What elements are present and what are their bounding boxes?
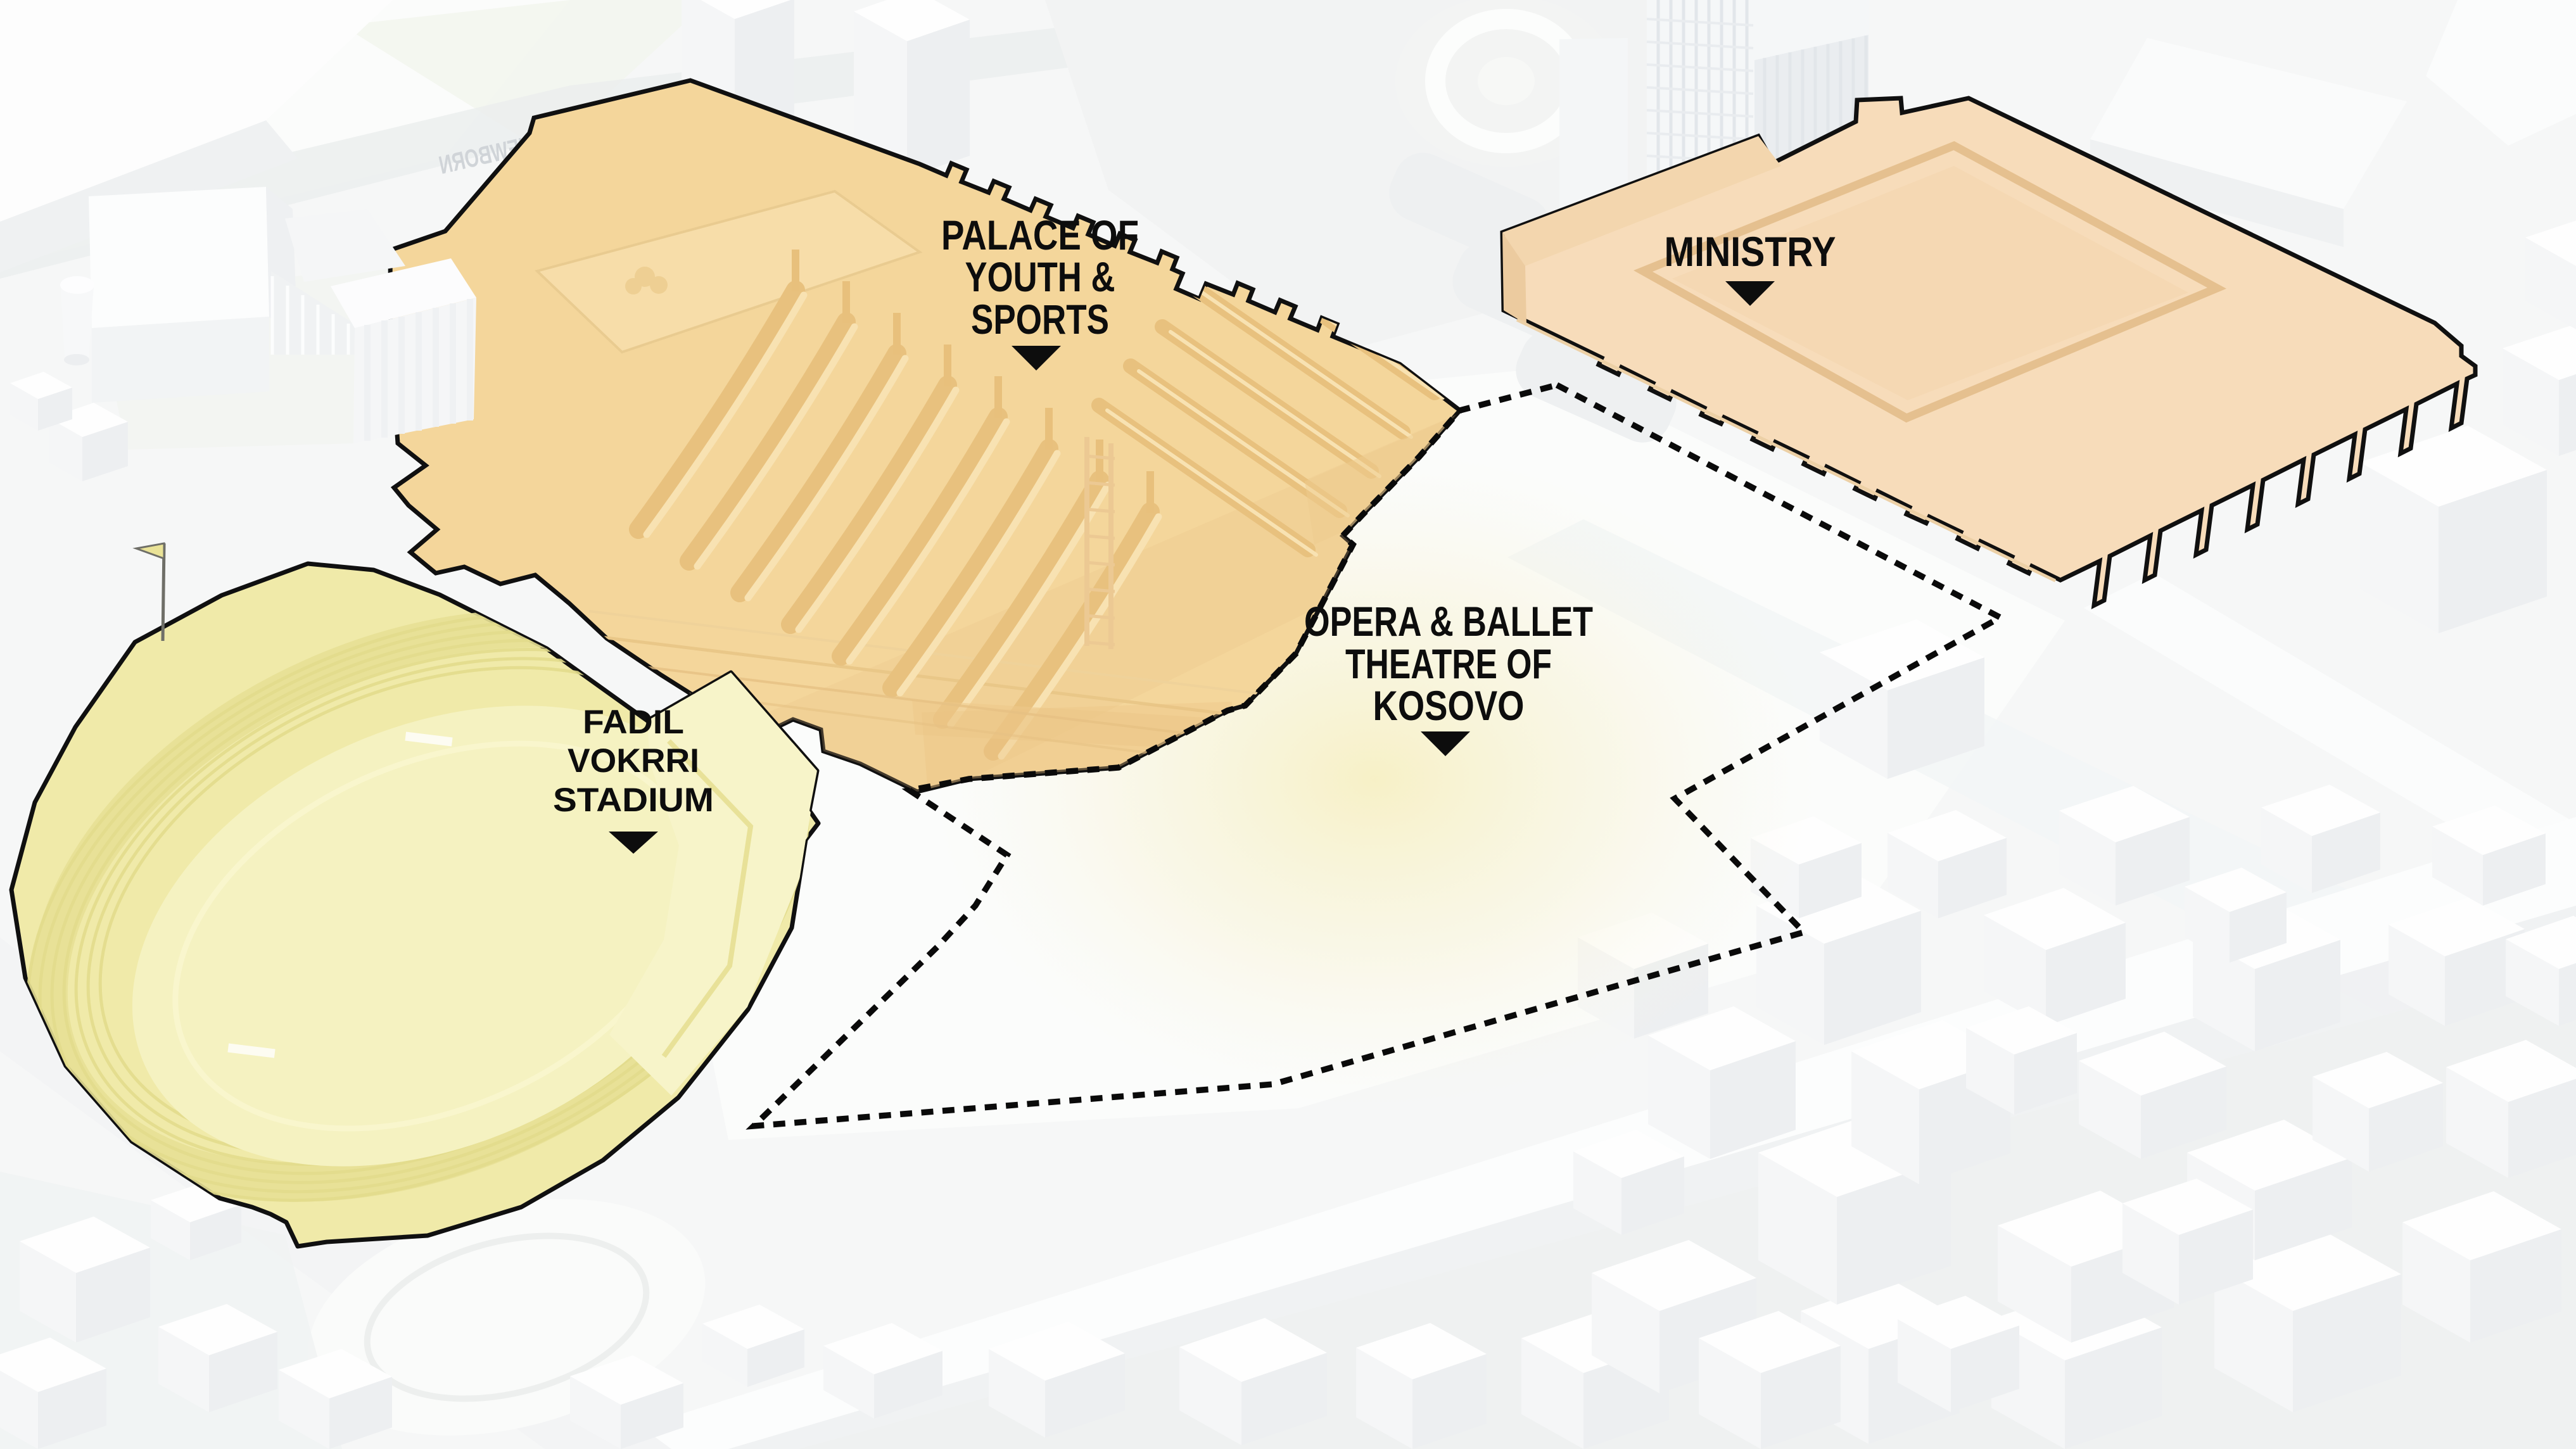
svg-text:OPERA & BALLET: OPERA & BALLET: [1304, 598, 1593, 645]
svg-text:YOUTH &: YOUTH &: [965, 253, 1115, 300]
svg-text:VOKRRI: VOKRRI: [568, 742, 699, 780]
svg-text:FADIL: FADIL: [583, 704, 684, 741]
svg-text:PALACE OF: PALACE OF: [941, 212, 1139, 258]
svg-text:KOSOVO: KOSOVO: [1373, 682, 1525, 729]
svg-text:SPORTS: SPORTS: [971, 296, 1109, 343]
svg-text:MINISTRY: MINISTRY: [1665, 228, 1836, 275]
svg-text:STADIUM: STADIUM: [553, 781, 714, 819]
svg-text:THEATRE OF: THEATRE OF: [1345, 640, 1552, 687]
